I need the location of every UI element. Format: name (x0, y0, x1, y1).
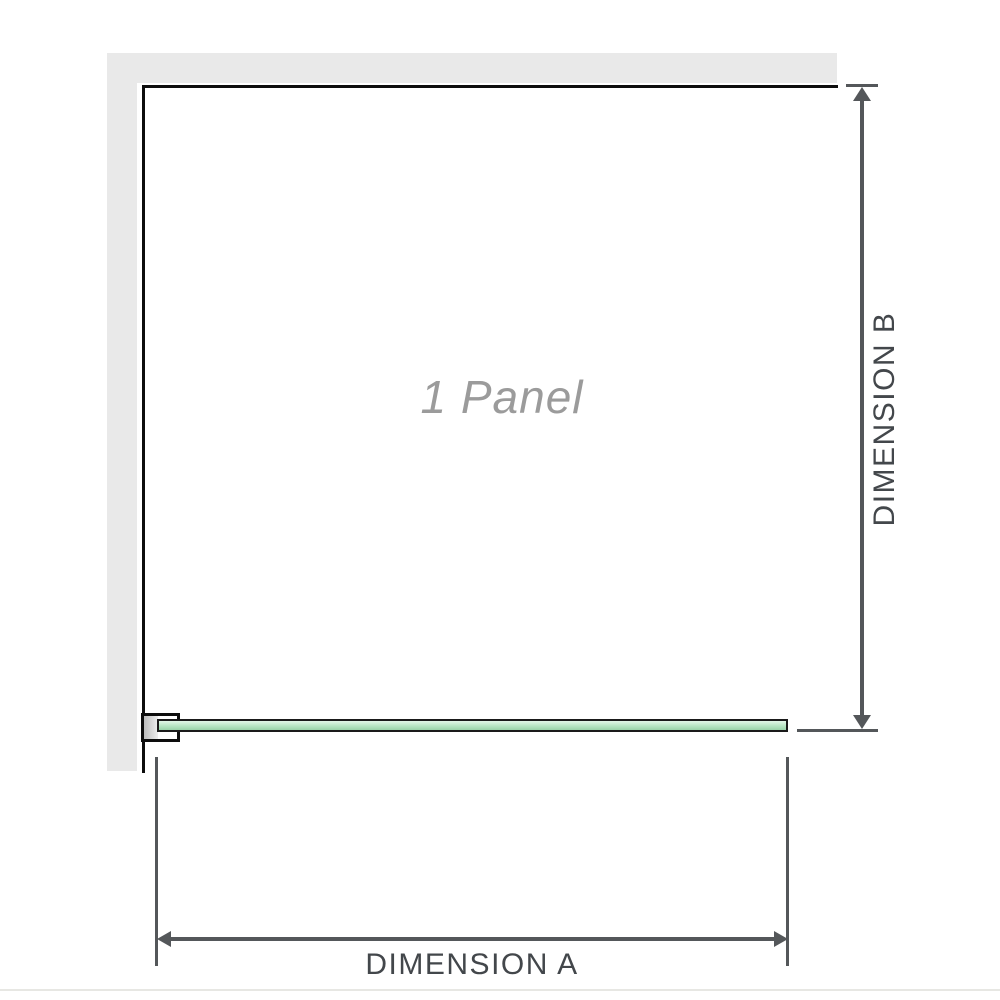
panel-count-label: 1 Panel (342, 372, 662, 423)
bottom-divider (0, 989, 1000, 991)
dimension-b-label: DIMENSION B (869, 299, 901, 539)
arrow-right-icon (774, 931, 788, 947)
panel-outline-top (142, 85, 838, 88)
arrow-left-icon (157, 931, 171, 947)
wall-left (107, 53, 137, 771)
glass-panel-bar (157, 719, 788, 732)
bracket-pad (144, 716, 158, 739)
arrow-up-icon (853, 87, 871, 101)
panel-outline-left (142, 85, 145, 773)
dimension-b-bottom-tick (797, 729, 878, 732)
arrow-down-icon (853, 715, 871, 729)
wall-top (107, 53, 837, 83)
dimension-b-line (860, 99, 864, 717)
dimension-a-line (168, 937, 778, 941)
panel-dimension-diagram: 1 Panel DIMENSION B DIMENSION A (0, 0, 1000, 1000)
dimension-a-label: DIMENSION A (322, 948, 622, 982)
